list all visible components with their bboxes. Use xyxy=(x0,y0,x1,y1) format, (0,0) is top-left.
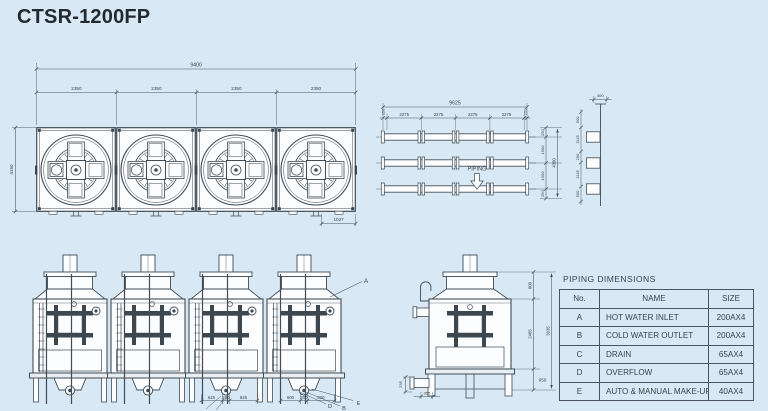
dim-anchor-r2: 200 xyxy=(300,395,308,400)
dim-pipe-bay-4: 2275 xyxy=(502,112,512,117)
cell-name: DRAIN xyxy=(600,345,709,364)
leader-a: A xyxy=(330,278,369,297)
pipe-row-2 xyxy=(376,157,536,169)
dim-anchor-l3: 825 xyxy=(240,395,248,400)
tower-3 xyxy=(186,255,267,404)
tower-2 xyxy=(108,255,189,404)
dim-side-left: 235 xyxy=(398,380,403,387)
pipe-row-1 xyxy=(376,131,536,143)
dim-row-gap-1: 250 xyxy=(540,128,545,135)
tower-1 xyxy=(30,255,111,404)
riser-elevation: 400 500 1145 200 1145 500 xyxy=(575,93,611,206)
pipe-label-b: B xyxy=(342,406,346,411)
overflow-gooseneck xyxy=(421,282,431,301)
dim-side-total: 3935 xyxy=(546,326,551,336)
makeup-fitting xyxy=(414,379,429,388)
cell-no: B xyxy=(560,327,600,346)
dim-riser-width: 400 xyxy=(597,93,604,98)
piping-label: PIPING xyxy=(468,167,487,173)
leader-a-label: A xyxy=(364,278,369,285)
dim-riser-4: 1145 xyxy=(575,169,580,178)
front-view: A 625 200 825 600 200 800 D B E xyxy=(30,255,369,411)
cell-name: AUTO & MANUAL MAKE-UP xyxy=(600,382,709,401)
leg xyxy=(505,374,512,396)
dim-pipe-bay-1: 2275 xyxy=(399,112,409,117)
cell-no: E xyxy=(560,382,600,401)
dim-riser-3: 200 xyxy=(575,153,580,160)
cell-size: 200AX4 xyxy=(709,308,754,327)
fan-unit-3 xyxy=(195,128,277,216)
dim-bay-3: 2350 xyxy=(231,86,242,91)
dim-side-base: 355 xyxy=(424,391,431,396)
dim-row-gap-2: 1900 xyxy=(540,145,545,155)
pipe-label-d: D xyxy=(328,404,332,410)
riser-branch xyxy=(587,158,601,168)
dim-pipe-bay-2: 2275 xyxy=(434,112,444,117)
fan-unit-1 xyxy=(35,128,117,216)
riser-branch xyxy=(587,184,601,194)
dim-pipe-end-left: 250 xyxy=(381,108,386,115)
piping-plan-dimensions: 9625 250 2275 2275 2275 2275 250 250 190… xyxy=(380,101,563,201)
cell-name: COLD WATER OUTLET xyxy=(600,327,709,346)
dim-pipe-total: 9625 xyxy=(449,101,461,107)
cell-name: OVERFLOW xyxy=(600,364,709,383)
table-row: A HOT WATER INLET 200AX4 xyxy=(560,308,754,327)
cell-no: A xyxy=(560,308,600,327)
cell-size: 65AX4 xyxy=(709,364,754,383)
cell-size: 200AX4 xyxy=(709,327,754,346)
dim-anchor-l2: 200 xyxy=(222,395,230,400)
dim-riser-2: 1145 xyxy=(575,134,580,143)
piping-dimensions-table: No. NAME SIZE A HOT WATER INLET 200AX4 B… xyxy=(559,289,754,401)
piping-plan: 9625 250 2275 2275 2275 2275 250 250 190… xyxy=(376,93,612,206)
tower-4 xyxy=(264,255,345,404)
dim-riser-5: 500 xyxy=(575,190,580,197)
dim-anchor-l1: 625 xyxy=(208,395,216,400)
cell-no: C xyxy=(560,345,600,364)
dim-anchor-r1: 600 xyxy=(287,395,295,400)
dim-pipe-end-right: 250 xyxy=(523,108,528,115)
dim-side-top: 800 xyxy=(528,281,533,289)
dim-row-gap-3: 1900 xyxy=(540,171,545,181)
col-header-name: NAME xyxy=(600,290,709,309)
col-header-no: No. xyxy=(560,290,600,309)
cell-size: 65AX4 xyxy=(709,345,754,364)
riser-branch xyxy=(587,132,601,142)
cell-size: 40AX4 xyxy=(709,382,754,401)
col-header-size: SIZE xyxy=(709,290,754,309)
inlet-fitting xyxy=(417,308,430,317)
fan-cylinder xyxy=(447,277,494,290)
dim-bay-2: 2350 xyxy=(151,86,162,91)
dim-riser-1: 500 xyxy=(575,116,580,123)
fan-deck-plate xyxy=(443,272,497,277)
dim-side-basin: 650 xyxy=(539,378,547,383)
fan-unit-4 xyxy=(275,128,357,216)
drain-pipe xyxy=(466,374,474,398)
table-row: C DRAIN 65AX4 xyxy=(560,345,754,364)
table-row: E AUTO & MANUAL MAKE-UP 40AX4 xyxy=(560,382,754,401)
dim-bay-4: 2350 xyxy=(311,86,322,91)
table-header-row: No. NAME SIZE xyxy=(560,290,754,309)
table-title: PIPING DIMENSIONS xyxy=(563,274,764,284)
dim-pipe-bay-3: 2275 xyxy=(468,112,478,117)
cell-name: HOT WATER INLET xyxy=(600,308,709,327)
dim-row-gap-4: 250 xyxy=(540,189,545,196)
plan-view: 9400 2350 2350 2350 2350 4150 1027 xyxy=(9,62,357,226)
dim-plan-offset: 1027 xyxy=(333,217,344,222)
fan-unit-2 xyxy=(115,128,197,216)
dim-plan-depth: 4150 xyxy=(9,164,14,175)
cell-no: D xyxy=(560,364,600,383)
pipe-row-3 xyxy=(376,183,536,195)
piping-dimensions-panel: PIPING DIMENSIONS No. NAME SIZE A HOT WA… xyxy=(559,274,764,401)
dim-side-body: 2485 xyxy=(528,329,533,339)
dim-plan-total: 9400 xyxy=(190,62,202,68)
cowl-flare xyxy=(432,289,508,299)
dim-row-total: 4300 xyxy=(552,158,557,168)
basin-rail xyxy=(426,369,515,374)
table-row: B COLD WATER OUTLET 200AX4 xyxy=(560,327,754,346)
pipe-label-e: E xyxy=(357,401,361,407)
dim-bay-1: 2350 xyxy=(71,86,82,91)
table-row: D OVERFLOW 65AX4 xyxy=(560,364,754,383)
side-view: 800 2485 650 3935 355 235 xyxy=(398,255,556,399)
